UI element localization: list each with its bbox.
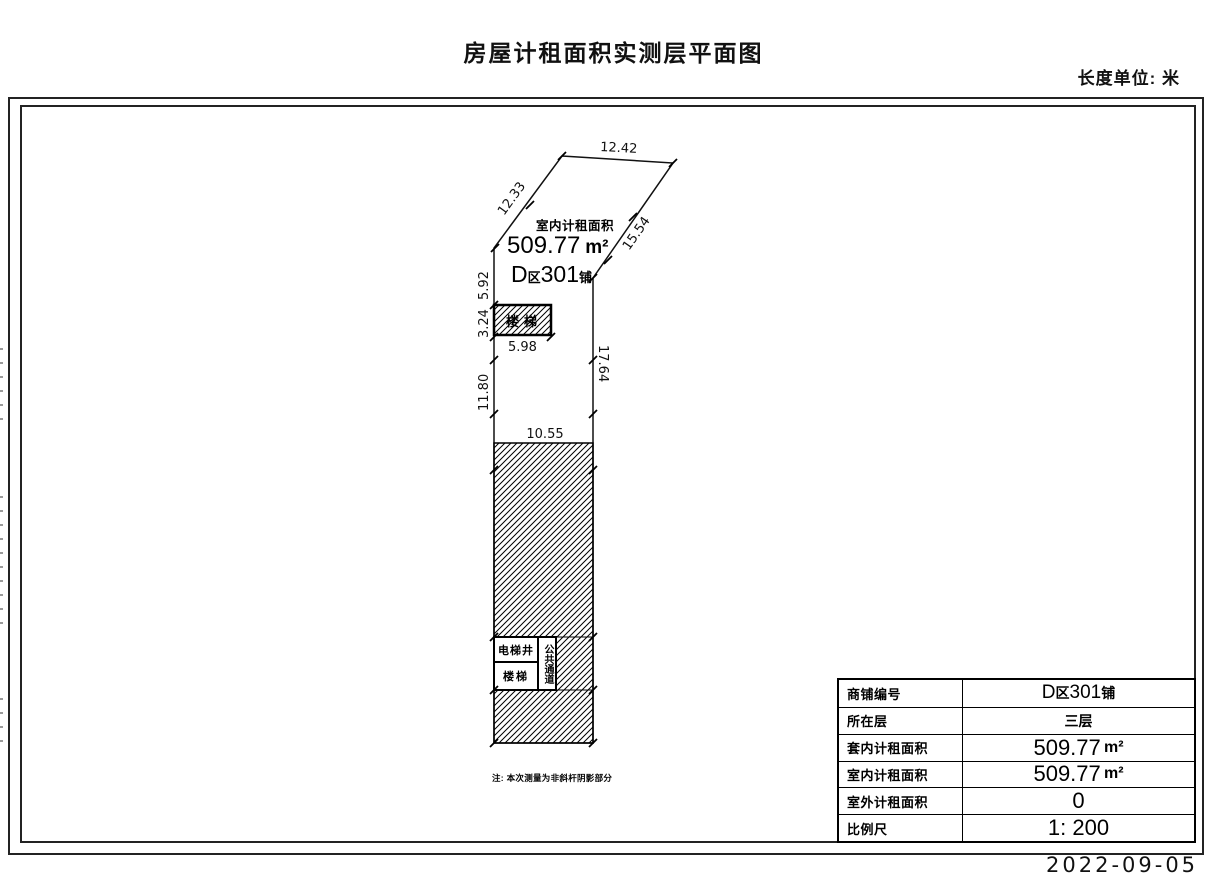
outdoor-area-number: 0 (1072, 788, 1084, 814)
dim-right-diagonal: 15.54 (620, 214, 654, 253)
dim-left-upper: 5.92 (477, 271, 492, 300)
survey-date: 2022-09-05 (1046, 853, 1198, 877)
elevator-shaft-label: 电梯井 (498, 642, 534, 658)
shop-number: 301 (541, 261, 579, 287)
dim-left-lower: 11.80 (477, 374, 492, 411)
table-label-outdoor-area: 室外计租面积 (839, 787, 962, 814)
table-value-unit-area: 509.77 m² (962, 734, 1194, 761)
table-value-scale: 1: 200 (962, 814, 1194, 841)
table-value-outdoor-area: 0 (962, 787, 1194, 814)
shop-id-annotation: D区301铺 (511, 261, 592, 288)
dim-stair-width: 5.98 (508, 340, 537, 355)
table-shop-letter: D (1042, 682, 1056, 704)
public-passage-label: 公共通道 (539, 639, 555, 689)
unit-area-number: 509.77 (1033, 735, 1100, 761)
table-shop-number: 301 (1070, 682, 1102, 704)
floor-value: 三层 (1065, 711, 1093, 731)
shop-zone: 区 (528, 270, 541, 285)
area-number: 509.77 (507, 232, 580, 259)
dim-hatch-width: 10.55 (526, 427, 563, 442)
scale-value: 1: 200 (1048, 815, 1109, 841)
area-unit: m² (585, 237, 608, 258)
dim-top-edge: 12.42 (600, 140, 638, 157)
table-value-floor: 三层 (962, 707, 1194, 734)
unit-area-unit: m² (1104, 739, 1124, 757)
table-label-unit-area: 套内计租面积 (839, 734, 962, 761)
dim-left-diagonal: 12.33 (495, 179, 529, 218)
table-value-shop-id: D区301铺 (962, 680, 1194, 707)
table-label-floor: 所在层 (839, 707, 962, 734)
table-label-shop-id: 商铺编号 (839, 680, 962, 707)
table-label-indoor-area: 室内计租面积 (839, 761, 962, 788)
indoor-area-unit: m² (1104, 765, 1124, 783)
shop-suffix: 铺 (579, 270, 592, 285)
table-value-indoor-area: 509.77 m² (962, 761, 1194, 788)
survey-note: 注: 本次测量为非斜杆阴影部分 (492, 772, 612, 784)
table-shop-suffix: 铺 (1101, 683, 1115, 703)
indoor-area-number: 509.77 (1033, 761, 1100, 787)
shop-letter: D (511, 261, 528, 287)
dim-right-vertical: 17.64 (595, 345, 610, 382)
public-area-hatch (494, 443, 593, 743)
shop-info-table: 商铺编号 D区301铺 所在层 三层 套内计租面积 509.77 m² 室内计租… (837, 678, 1196, 843)
dim-stair-height: 3.24 (477, 309, 492, 338)
floorplan-sheet: { "header": { "title": "房屋计租面积实测层平面图", "… (0, 0, 1207, 865)
upper-stair-label: 楼梯 (506, 311, 542, 330)
lower-stair-label: 楼梯 (503, 668, 529, 684)
table-label-scale: 比例尺 (839, 814, 962, 841)
indoor-area-value: 509.77 m² (507, 232, 608, 260)
table-shop-zone: 区 (1056, 683, 1070, 703)
